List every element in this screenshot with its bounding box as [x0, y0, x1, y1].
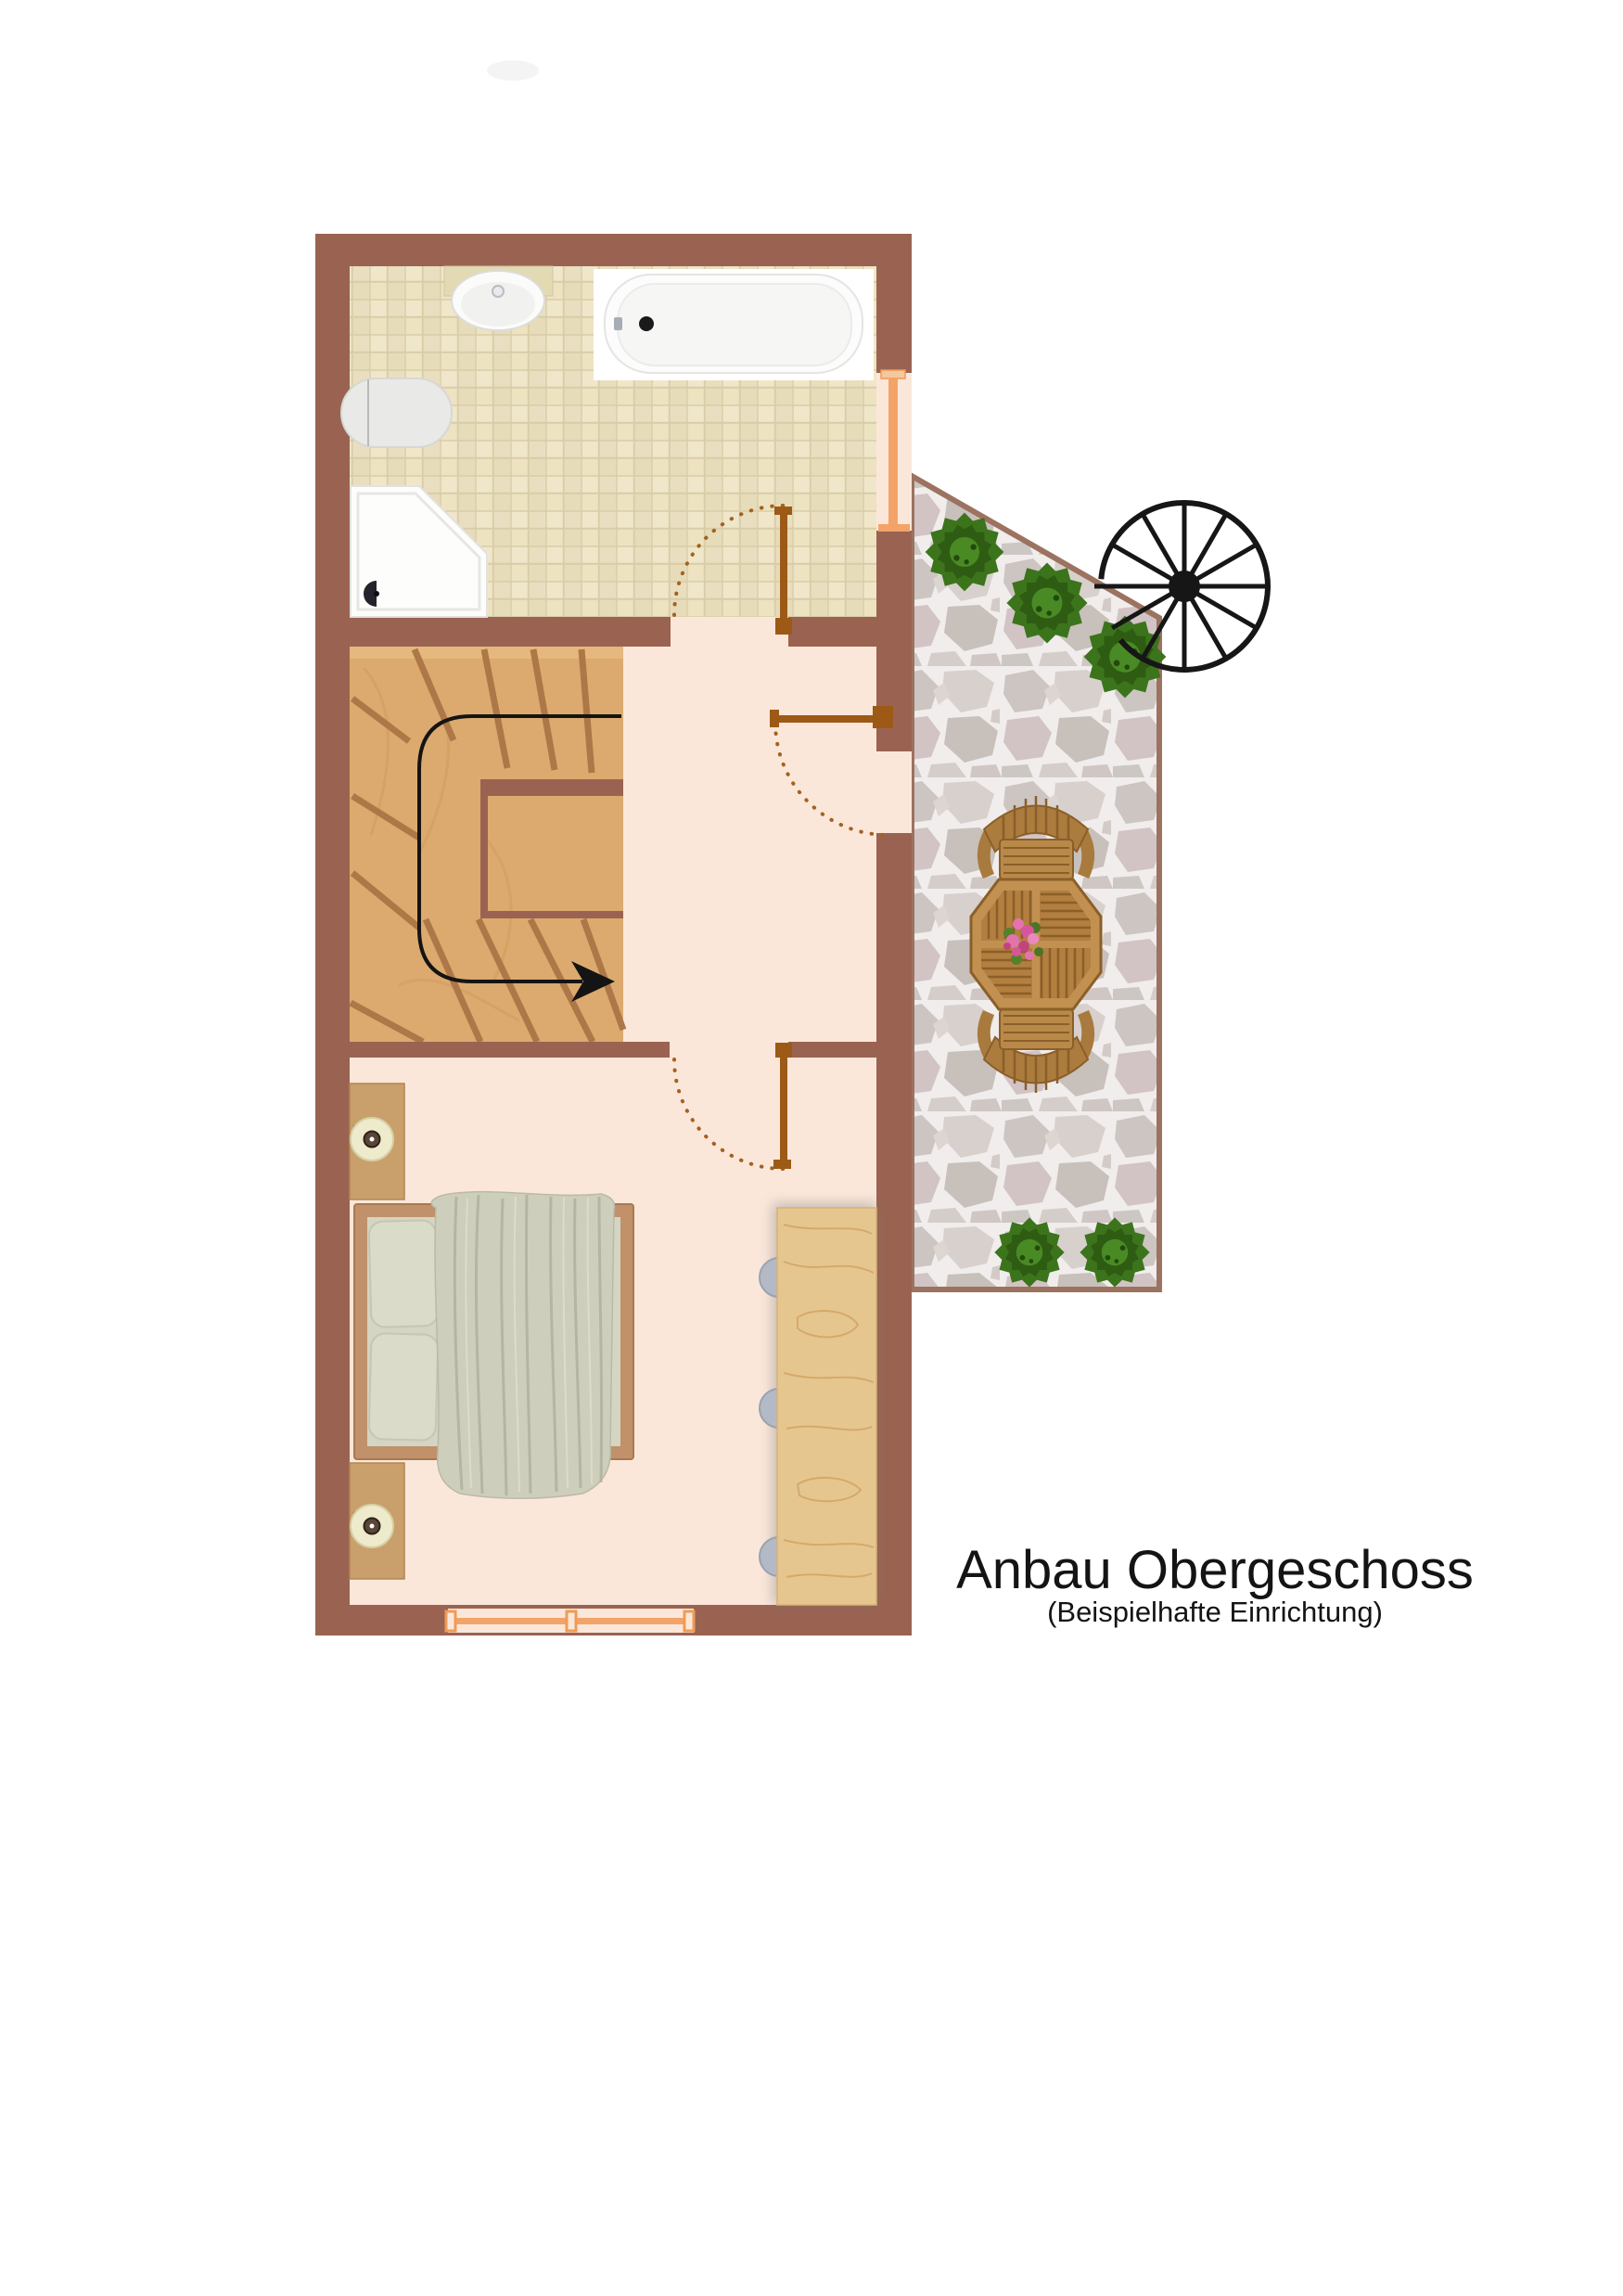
wall-bedroom-north-left: [315, 1042, 670, 1058]
bathtub: [594, 269, 874, 380]
stair-void-wall-bottom: [480, 911, 623, 918]
patio-table: [971, 879, 1101, 1009]
bathroom-window: [876, 370, 912, 532]
wall-right-upper: [876, 234, 912, 373]
plan-subtitle: (Beispielhafte Einrichtung): [1047, 1596, 1383, 1628]
terrace-door-threshold: [876, 751, 912, 833]
floorplan-svg: Anbau Obergeschoss (Beispielhafte Einric…: [0, 0, 1623, 2296]
double-bed: [354, 1192, 633, 1499]
pillow: [369, 1333, 439, 1441]
pillow: [369, 1220, 439, 1328]
duvet: [431, 1192, 614, 1499]
wall-bathroom-south-right: [788, 617, 876, 647]
lamp-icon: [351, 1505, 393, 1547]
wall-bathroom-south-left: [315, 617, 671, 647]
wall-right-lower: [876, 833, 912, 1635]
wall-bedroom-north-right: [788, 1042, 876, 1058]
nightstand-bottom: [350, 1463, 404, 1579]
wall-left: [315, 234, 350, 1635]
lamp-icon: [351, 1118, 393, 1161]
floorplan-page: Anbau Obergeschoss (Beispielhafte Einric…: [0, 0, 1623, 2296]
stair-void-wall-top: [480, 779, 623, 796]
hallway-floor: [623, 617, 876, 1058]
scan-smudge: [487, 60, 539, 81]
bedroom-window: [446, 1609, 694, 1633]
wardrobe: [760, 1203, 876, 1605]
nightstand-top: [350, 1084, 404, 1199]
terrace: [912, 476, 1166, 1289]
bathtub-drain: [639, 316, 654, 331]
toilet: [341, 378, 452, 447]
patio-set: [971, 796, 1101, 1093]
bathtub-faucet: [614, 317, 622, 330]
stair-void-wall-left: [480, 779, 488, 918]
plan-title: Anbau Obergeschoss: [956, 1540, 1474, 1600]
wall-top: [315, 234, 912, 266]
sink-faucet: [492, 286, 504, 297]
